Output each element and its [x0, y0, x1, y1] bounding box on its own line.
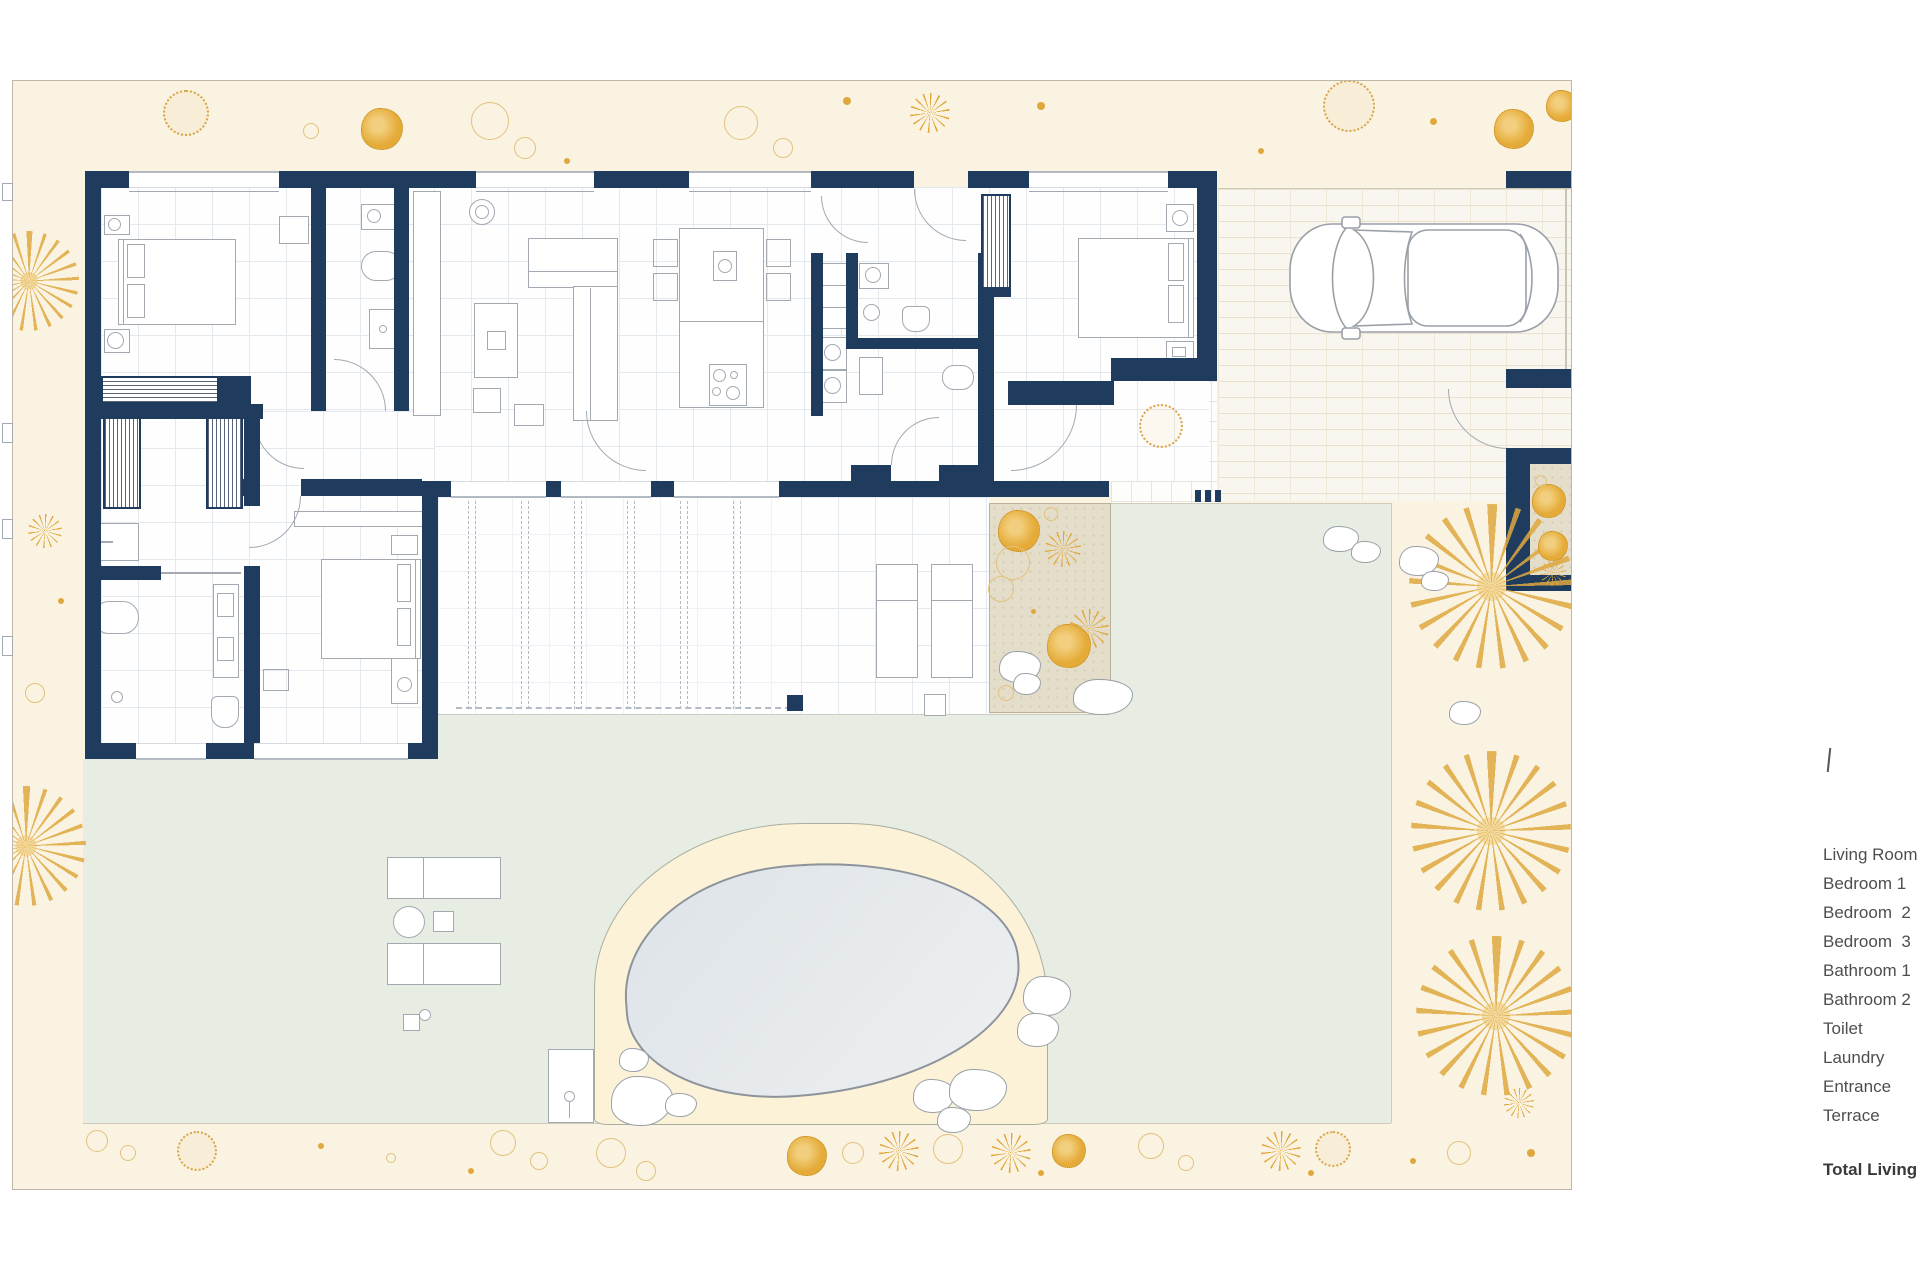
legend-item: Bedroom 1 [1823, 874, 1906, 903]
plant-icon [879, 1131, 919, 1171]
window [689, 171, 811, 188]
wall-segment [1197, 187, 1217, 358]
plant-icon [1532, 484, 1566, 518]
plant-icon [910, 93, 950, 133]
plant-icon [1031, 609, 1036, 614]
basin-icon [217, 593, 234, 617]
pillow [1168, 285, 1184, 323]
wall-segment [968, 171, 1029, 188]
sunbed [931, 564, 973, 678]
plant-icon [1258, 148, 1264, 154]
plant-icon [1546, 90, 1572, 122]
rock-icon [937, 1107, 971, 1133]
wall-segment [1111, 358, 1217, 381]
wall-segment [1506, 369, 1572, 388]
step-tick [1195, 490, 1201, 502]
side-table [433, 911, 454, 932]
plant-icon [1315, 1131, 1351, 1167]
wardrobe [103, 416, 141, 509]
wall-segment [1506, 171, 1571, 188]
plant-icon [1504, 1088, 1534, 1118]
window [674, 481, 779, 498]
fence-post [2, 519, 13, 539]
plant-icon [1447, 1141, 1471, 1165]
plant-icon [1261, 1131, 1301, 1171]
entry-closet [981, 194, 1011, 289]
plant-icon [1308, 1170, 1314, 1176]
pouf [263, 669, 289, 691]
burner-icon [726, 386, 740, 400]
driveway-gate-line [1565, 189, 1567, 369]
plant-icon [1323, 80, 1375, 132]
chair [766, 273, 791, 301]
step-tick [1215, 490, 1221, 502]
plant-icon [86, 1130, 108, 1152]
wall-segment [101, 566, 161, 580]
window [451, 481, 546, 498]
plant-icon [471, 102, 509, 140]
pergola-beam [627, 501, 635, 709]
plant-icon [386, 1153, 396, 1163]
faucet-icon [99, 541, 113, 543]
plant-icon [1540, 560, 1566, 586]
pendant-lamp-icon [475, 205, 489, 219]
garden-table [403, 1014, 420, 1031]
legend-item: Bedroom 3 [1823, 932, 1911, 961]
burner-icon [712, 387, 721, 396]
sliding-door-line [161, 572, 241, 574]
shower-head-icon [564, 1091, 575, 1102]
drain-icon [379, 325, 387, 333]
plant-icon [724, 106, 758, 140]
lamp-icon [107, 332, 124, 349]
window-sill [476, 191, 594, 192]
plant-icon [25, 683, 45, 703]
dryer-door-icon [824, 377, 841, 394]
stepping-stone [924, 694, 946, 716]
wall-segment [279, 171, 476, 188]
plant-icon [636, 1161, 656, 1181]
window [136, 743, 206, 760]
outdoor-shower [548, 1049, 594, 1123]
wall-segment [846, 338, 994, 349]
window [129, 171, 279, 188]
plant-icon [1038, 1170, 1044, 1176]
pergola-beam [521, 501, 529, 709]
plant-icon [1494, 109, 1534, 149]
stray-mark [1827, 748, 1831, 772]
legend-item: Bathroom 1 [1823, 961, 1911, 990]
wall-segment [206, 743, 254, 759]
step-tick [1205, 490, 1211, 502]
plant-icon [530, 1152, 548, 1170]
pillow [397, 608, 411, 646]
sunbed [876, 564, 918, 678]
wall-segment [651, 481, 674, 497]
sofa-line [528, 271, 618, 272]
plant-icon [998, 685, 1014, 701]
plant-icon [1045, 531, 1081, 567]
palm-plant-icon [1416, 936, 1572, 1096]
plant-icon [596, 1138, 626, 1168]
floor-plan-canvas [12, 80, 1572, 1190]
pergola-beam [574, 501, 582, 709]
fence-post [2, 183, 13, 201]
headboard-line [1188, 238, 1189, 338]
lamp-icon [397, 677, 412, 692]
clock-icon [1172, 347, 1186, 357]
plant-icon [490, 1130, 516, 1156]
headboard-line [123, 239, 124, 325]
plant-icon [843, 97, 851, 105]
lamp-icon [1172, 210, 1188, 226]
terrace-area-left [83, 759, 438, 1123]
wall-segment [1168, 171, 1217, 188]
wall-segment [219, 376, 251, 404]
sunbed-line [876, 600, 918, 601]
desk-chair [487, 331, 506, 350]
legend-item: Living Room [1823, 845, 1918, 874]
basin-icon [367, 209, 381, 223]
window [254, 743, 408, 760]
bin-icon [863, 304, 880, 321]
plant-icon [1138, 1133, 1164, 1159]
pillow [127, 284, 145, 318]
dresser [294, 511, 424, 527]
bath-sink [859, 357, 883, 395]
chair [653, 273, 678, 301]
wardrobe [206, 416, 243, 509]
rock-icon [1449, 701, 1481, 725]
sofa-line [590, 288, 591, 421]
car-icon [1284, 216, 1564, 340]
basin-icon [865, 267, 881, 283]
plant-icon [1037, 102, 1045, 110]
page: { "legend": { "items": ["Living Room","B… [0, 0, 1920, 1280]
window [476, 171, 594, 188]
wall-segment [851, 465, 891, 481]
lounger-line [423, 857, 424, 899]
wall-segment [85, 404, 263, 419]
pillow [127, 244, 145, 278]
lamp-icon [108, 218, 121, 231]
terrace-area-right [1109, 503, 1391, 1123]
plant-icon [1535, 475, 1547, 487]
plant-icon [120, 1145, 136, 1161]
lounger [387, 857, 501, 899]
wall-segment [244, 566, 260, 743]
chair [653, 239, 678, 267]
legend-item: Entrance [1823, 1077, 1891, 1106]
plant-icon [58, 598, 64, 604]
plant-icon [361, 108, 403, 150]
pergola-dashed-edge [456, 707, 801, 709]
plant-icon [1047, 624, 1091, 668]
toilet [211, 696, 239, 728]
plant-icon [773, 138, 793, 158]
plant-icon [1430, 118, 1437, 125]
plant-icon [514, 137, 536, 159]
plant-icon [303, 123, 319, 139]
legend-item: Terrace [1823, 1106, 1880, 1135]
driveway-top-line [1218, 188, 1572, 189]
sunbed-line [931, 600, 973, 601]
plant-icon [1410, 1158, 1416, 1164]
plant-icon [1538, 531, 1568, 561]
plant-icon [1052, 1134, 1086, 1168]
window-sill [689, 191, 811, 192]
plant-icon [1139, 404, 1183, 448]
deck-border [438, 714, 1109, 715]
terrace-border-top-right [1109, 503, 1391, 504]
legend-item: Laundry [1823, 1048, 1884, 1077]
headboard-line [415, 559, 416, 659]
wall-segment [981, 289, 1011, 297]
wall-segment [244, 414, 260, 506]
nightstand [391, 535, 418, 555]
garden-chair [419, 1009, 431, 1021]
pergola-deck [438, 497, 801, 714]
toilet [942, 365, 974, 390]
wall-segment [394, 187, 409, 411]
island-line [679, 321, 764, 322]
legend-item: Toilet [1823, 1019, 1863, 1048]
wall-segment [85, 743, 136, 759]
plant-icon [177, 1131, 217, 1171]
wall-segment [422, 481, 438, 759]
plant-icon [468, 1168, 474, 1174]
plant-icon [1044, 507, 1058, 521]
round-table [393, 906, 425, 938]
wall-segment [1008, 381, 1114, 405]
pillow [1168, 243, 1184, 281]
wall-segment [811, 253, 823, 416]
wall-segment [311, 187, 326, 411]
legend-total-label: Total Living [1823, 1160, 1917, 1180]
wall-segment [546, 481, 561, 497]
shower-stem [569, 1102, 570, 1118]
lounger [387, 943, 501, 985]
wall-segment [811, 171, 914, 188]
plant-icon [787, 1136, 827, 1176]
burner-icon [730, 371, 738, 379]
plant-icon [996, 546, 1030, 580]
lounger-line [423, 943, 424, 985]
plant-icon [933, 1134, 963, 1164]
tv-cabinet [413, 191, 441, 416]
legend-item: Bathroom 2 [1823, 990, 1911, 1019]
plant-icon [564, 158, 570, 164]
terrace-border-right [1391, 503, 1392, 1123]
legend-item: Bedroom 2 [1823, 903, 1911, 932]
wall-segment [438, 481, 451, 497]
sofa-chaise [573, 286, 618, 421]
window-sill [1029, 191, 1168, 192]
window [1029, 171, 1168, 188]
wardrobe [101, 376, 219, 404]
pergola-beam [468, 501, 476, 709]
plant-icon [1178, 1155, 1194, 1171]
pergola-post [787, 695, 803, 711]
plant-icon [988, 576, 1014, 602]
coffee-table [514, 404, 544, 426]
fence-post [2, 423, 13, 443]
wall-segment [85, 171, 101, 759]
basin-icon [718, 259, 732, 273]
sofa [528, 238, 618, 288]
washer-door-icon [824, 344, 841, 361]
plant-icon [28, 514, 62, 548]
palm-plant-icon [1411, 751, 1571, 911]
drain-icon [111, 691, 123, 703]
pergola-beam [680, 501, 688, 709]
coffee-table [473, 388, 501, 413]
burner-icon [713, 369, 726, 382]
palm-plant-icon [12, 786, 86, 906]
plant-icon [318, 1143, 324, 1149]
fence-post [2, 636, 13, 656]
wall-segment [301, 479, 422, 496]
basin-icon [217, 637, 234, 661]
window [561, 481, 651, 498]
plant-icon [842, 1142, 864, 1164]
pergola-beam [733, 501, 741, 709]
plant-icon [991, 1133, 1031, 1173]
plant-icon [998, 510, 1040, 552]
chair [766, 239, 791, 267]
pillow [397, 564, 411, 602]
wall-segment [779, 481, 1109, 497]
window-sill [129, 191, 279, 192]
palm-plant-icon [12, 231, 79, 331]
wall-segment [594, 171, 689, 188]
toilet [902, 306, 930, 332]
plant-icon [163, 90, 209, 136]
wall-segment [846, 253, 858, 338]
plant-icon [1527, 1149, 1535, 1157]
side-table [279, 216, 309, 244]
